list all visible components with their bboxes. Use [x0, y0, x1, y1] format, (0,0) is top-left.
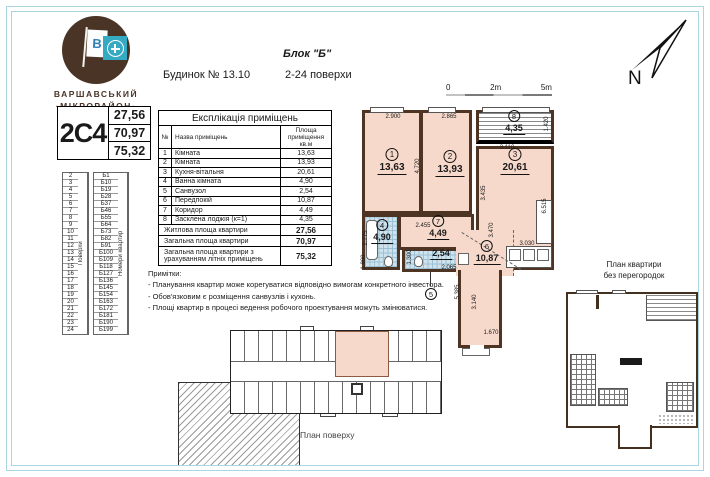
north-arrow-icon: N: [622, 14, 702, 88]
dimension-label: 1.300: [407, 249, 413, 264]
dimension-label: 2.775: [363, 230, 369, 245]
floor-cell: 2: [63, 173, 78, 180]
mini-tile-zone: [570, 354, 596, 406]
room-5-leader-line: [430, 272, 431, 286]
apartment-cell: Б46: [94, 208, 118, 215]
apartment-cell: Б64: [94, 222, 118, 229]
explication-cell: 4,35: [281, 216, 331, 225]
explication-cell: 4: [159, 178, 172, 187]
dimension-label: 3.435: [481, 185, 487, 200]
col-header-area: Площа приміщення кв.м: [281, 126, 331, 148]
apartments-column-cells: Б1Б10Б19Б28Б37Б46Б55Б64Б73Б82Б91Б100Б109…: [94, 173, 118, 334]
room-area-value: 10,87: [474, 253, 501, 265]
floor-cell: 21: [63, 306, 78, 313]
plan-no-partitions: План квартири без перегородок: [560, 256, 708, 456]
mini-dotted-zone: [658, 414, 694, 424]
floor-cell: 17: [63, 278, 78, 285]
floor-cell: 23: [63, 320, 78, 327]
toilet-icon: [414, 256, 423, 267]
window-room2: [428, 107, 456, 113]
floor-cell: 20: [63, 299, 78, 306]
floors-header: Поверхи: [78, 173, 88, 334]
mini-plan-label-2: без перегородок: [560, 271, 708, 280]
apartment-cell: Б172: [94, 306, 118, 313]
room-number-circle: 8: [508, 110, 520, 122]
mini-window: [612, 290, 626, 294]
explication-cell: 4,90: [281, 178, 331, 187]
explication-cell: 13,63: [281, 149, 331, 158]
total-area-value: 70,97: [109, 125, 150, 143]
dimension-label: 2.865: [441, 114, 456, 120]
explication-cell: 5: [159, 187, 172, 196]
apartment-cell: Б181: [94, 313, 118, 320]
apartment-code: 2С4: [58, 107, 108, 159]
explication-cell: Засклена лоджія (к=1): [172, 216, 281, 225]
apartment-cell: Б100: [94, 250, 118, 257]
floor-overview: План поверху: [172, 326, 447, 472]
explication-cell: 6: [159, 197, 172, 206]
floor-cell: 24: [63, 327, 78, 334]
room-number-circle: 3: [509, 148, 522, 161]
floor-cell: 18: [63, 285, 78, 292]
medical-plus-icon: [103, 36, 127, 60]
room-number-circle: 6: [481, 240, 493, 252]
room-label: 7 4,49: [427, 215, 449, 240]
explication-total-row: Загальна площа квартири з урахуванням лі…: [159, 247, 331, 265]
apartment-cell: Б163: [94, 299, 118, 306]
apartment-cell: Б55: [94, 215, 118, 222]
explication-cell: Кухня-вітальня: [172, 168, 281, 177]
explication-cell: 20,61: [281, 168, 331, 177]
scale-tick: 5m: [541, 83, 552, 92]
room-area-value: 4,35: [503, 123, 525, 135]
explication-row: 8Засклена лоджія (к=1)4,35: [159, 216, 331, 226]
apartment-cell: Б136: [94, 278, 118, 285]
sink-icon: [509, 249, 521, 261]
scale-line: [446, 94, 552, 96]
apartment-cell: Б109: [94, 257, 118, 264]
explication-header-row: № Назва приміщень Площа приміщення кв.м: [159, 126, 331, 149]
entrance-door-gap: [470, 345, 484, 349]
apartment-cell: Б154: [94, 292, 118, 299]
room-area-value: 4,49: [427, 228, 449, 240]
room-label: 6 10,87: [474, 240, 501, 265]
apartment-type-badge: 2С4 27,56 70,97 75,32: [57, 106, 151, 160]
apartment-cell: Б19: [94, 187, 118, 194]
explication-row: 1Кімната13,63: [159, 149, 331, 159]
explication-row: 7Коридор4,49: [159, 206, 331, 216]
floor-cell: 19: [63, 292, 78, 299]
floor-cell: 4: [63, 187, 78, 194]
floor-cell: 7: [63, 208, 78, 215]
washing-machine-icon: [458, 253, 469, 265]
floors-apartments-table: 23456789101112131415161718192021222324 П…: [62, 172, 129, 335]
explication-cell: 2,54: [281, 187, 331, 196]
scale-ticks: 0 2m 5m: [446, 83, 552, 92]
col-header-num: №: [159, 126, 172, 148]
dimension-label: 1.800: [361, 254, 367, 269]
apartment-cell: Б91: [94, 243, 118, 250]
explication-cell: 4,49: [281, 206, 331, 215]
explication-total-row: Житлова площа квартири 27,56: [159, 225, 331, 236]
dimension-label: 3.030: [519, 241, 534, 247]
explication-table: Експлікація приміщень № Назва приміщень …: [158, 110, 332, 266]
explication-cell: 13,93: [281, 159, 331, 168]
explication-cell: Кімната: [172, 159, 281, 168]
room-label: 1 13,63: [377, 148, 406, 175]
plus-icon: [107, 40, 124, 57]
highlighted-apartment: [335, 331, 389, 377]
floor-cell: 11: [63, 236, 78, 243]
room-area-value: 13,93: [435, 164, 464, 177]
floor-cell: 5: [63, 194, 78, 201]
dimension-label: 5.385: [455, 284, 461, 299]
mini-plan-label-1: План квартири: [560, 260, 708, 269]
explication-row: 2Кімната13,93: [159, 159, 331, 169]
mini-column-mark: [620, 358, 642, 365]
room-number-circle: 2: [444, 150, 457, 163]
explication-row: 5Санвузол2,54: [159, 187, 331, 197]
total-with-summer-value: 75,32: [109, 142, 150, 159]
mini-window: [576, 290, 598, 294]
living-area-value: 27,56: [109, 107, 150, 125]
toilet-icon: [384, 256, 393, 267]
mini-plan-entrance: [618, 425, 652, 449]
apartment-cell: Б1: [94, 173, 118, 180]
explication-cell: Передпокій: [172, 197, 281, 206]
explication-cell: Санвузол: [172, 187, 281, 196]
floor-overview-label: План поверху: [300, 430, 354, 440]
dimension-label: 3.470: [489, 222, 495, 237]
apartment-cell: Б145: [94, 285, 118, 292]
explication-cell: 7: [159, 206, 172, 215]
floor-cell: 22: [63, 313, 78, 320]
scale-tick: 0: [446, 83, 450, 92]
apartment-areas: 27,56 70,97 75,32: [108, 107, 150, 159]
explication-row: 6Передпокій10,87: [159, 197, 331, 207]
entrance-porch: [462, 348, 490, 356]
room-label: 5: [425, 288, 437, 300]
floor-cell: 3: [63, 180, 78, 187]
building-outline: [230, 330, 442, 414]
floor-cell: 9: [63, 222, 78, 229]
dimension-label: 4.720: [415, 158, 421, 173]
north-label: N: [628, 68, 642, 88]
room-area-value: 4,90: [371, 232, 393, 244]
floor-cell: 14: [63, 257, 78, 264]
page: { "brand": { "flag_letter": "В", "line1"…: [0, 0, 710, 477]
floor-cell: 16: [63, 271, 78, 278]
room-label: 4 4,90: [371, 219, 393, 244]
mini-loggia-hatch: [646, 295, 696, 321]
floors-range: 2-24 поверхи: [285, 69, 352, 81]
explication-cell: 10,87: [281, 197, 331, 206]
scale-tick: 2m: [490, 83, 501, 92]
explication-cell: 3: [159, 168, 172, 177]
floor-cell: 15: [63, 264, 78, 271]
floors-column: 23456789101112131415161718192021222324 П…: [62, 172, 89, 335]
explication-cell: 1: [159, 149, 172, 158]
floor-cell: 10: [63, 229, 78, 236]
apartment-cell: Б199: [94, 327, 118, 334]
floor-cell: 13: [63, 250, 78, 257]
brand-name-line1: ВАРШАВСЬКИЙ: [36, 89, 156, 99]
stove-icon: [523, 249, 535, 261]
window-room1: [370, 107, 404, 113]
block-title: Блок "Б": [283, 48, 331, 60]
room-label: 8 4,35: [503, 110, 525, 135]
apartment-cell: Б73: [94, 229, 118, 236]
explication-total-row: Загальна площа квартири 70,97: [159, 236, 331, 247]
scale-bar: 0 2m 5m: [446, 83, 552, 96]
explication-row: 3Кухня-вітальня20,61: [159, 168, 331, 178]
floor-cell: 6: [63, 201, 78, 208]
floors-column-cells: 23456789101112131415161718192021222324: [63, 173, 78, 334]
apartment-cell: Б37: [94, 201, 118, 208]
explication-cell: Ванна кімната: [172, 178, 281, 187]
explication-cell: Коридор: [172, 206, 281, 215]
apartment-cell: Б10: [94, 180, 118, 187]
room-area-value: 13,63: [377, 162, 406, 175]
room-number-circle: 1: [386, 148, 399, 161]
apartments-header: Номери квартир: [118, 173, 128, 334]
room-number-circle: 7: [432, 215, 444, 227]
explication-cell: 2: [159, 159, 172, 168]
mini-wall-stub: [596, 295, 599, 309]
appliance-icon: [537, 249, 549, 261]
mini-tile-zone: [598, 388, 628, 406]
elevator-core: [351, 383, 363, 395]
apartment-cell: Б127: [94, 271, 118, 278]
dimension-label: 1.420: [544, 116, 550, 131]
floor-cell: 12: [63, 243, 78, 250]
room-label: 2,54: [430, 248, 452, 260]
room-6-hall-lower: [458, 270, 502, 348]
dimension-label: 2.065: [441, 265, 456, 271]
explication-body: 1Кімната13,632Кімната13,933Кухня-вітальн…: [159, 149, 331, 225]
floor-cell: 8: [63, 215, 78, 222]
dimension-label: 1.670: [483, 330, 498, 336]
apartments-column: Б1Б10Б19Б28Б37Б46Б55Б64Б73Б82Б91Б100Б109…: [93, 172, 129, 335]
dimension-label: 6.515: [542, 198, 548, 213]
room-area-value: 20,61: [500, 162, 529, 175]
explication-cell: 8: [159, 216, 172, 225]
apartment-cell: Б28: [94, 194, 118, 201]
apartment-cell: Б190: [94, 320, 118, 327]
mini-tile-zone: [666, 382, 694, 412]
room-label: 3 20,61: [500, 148, 529, 175]
room-number-circle: 4: [376, 219, 388, 231]
dimension-label: 3.140: [472, 294, 478, 309]
building-title: Будинок № 13.10: [163, 69, 250, 81]
explication-title: Експлікація приміщень: [159, 111, 331, 126]
room-area-value: 2,54: [430, 248, 452, 260]
room-number-circle: 5: [425, 288, 437, 300]
explication-row: 4Ванна кімната4,90: [159, 178, 331, 188]
apartment-cell: Б118: [94, 264, 118, 271]
explication-cell: Кімната: [172, 149, 281, 158]
dimension-label: 2.900: [385, 114, 400, 120]
apartment-cell: Б82: [94, 236, 118, 243]
col-header-name: Назва приміщень: [172, 126, 281, 148]
room-label: 2 13,93: [435, 150, 464, 177]
